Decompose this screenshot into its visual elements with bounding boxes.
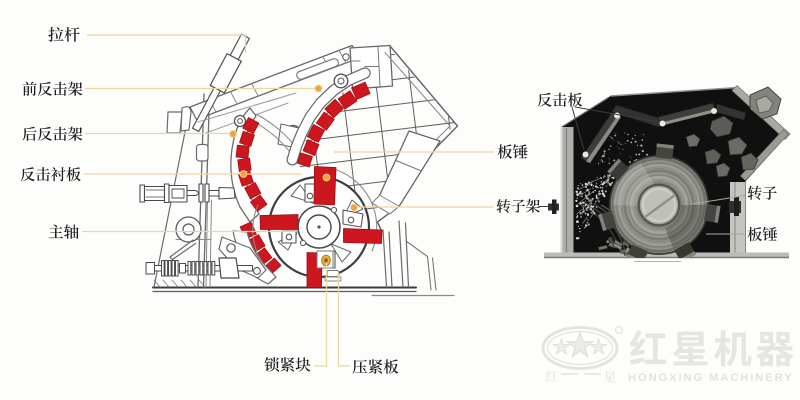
svg-text:HONGXING MACHINERY: HONGXING MACHINERY [628, 372, 794, 384]
